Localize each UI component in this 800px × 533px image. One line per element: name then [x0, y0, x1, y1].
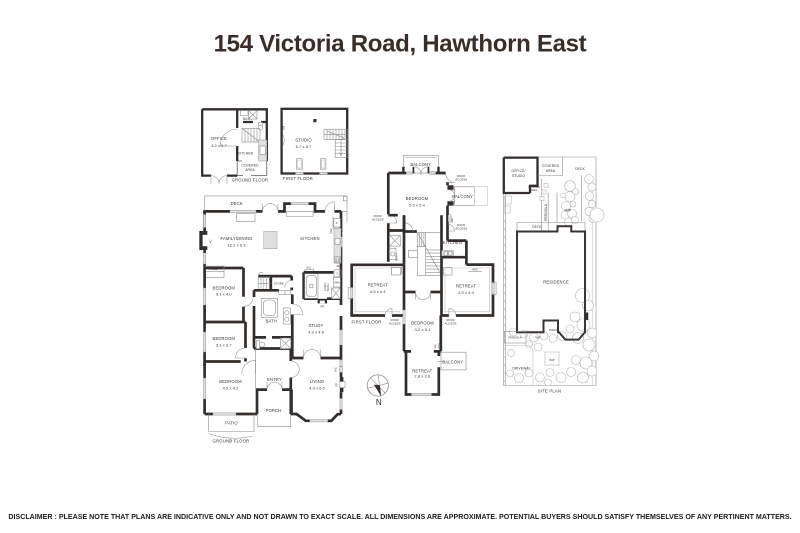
svg-text:5.5 x 5.4: 5.5 x 5.4 — [409, 203, 426, 208]
svg-text:LIVING: LIVING — [310, 379, 324, 384]
svg-text:FP: FP — [335, 383, 339, 387]
svg-text:BEDROOM: BEDROOM — [406, 196, 429, 201]
svg-text:PORCH: PORCH — [266, 408, 282, 413]
svg-text:DISCLAIMER : PLEASE NOTE THAT: DISCLAIMER : PLEASE NOTE THAT PLANS ARE … — [8, 513, 791, 521]
svg-text:KITCHEN: KITCHEN — [443, 240, 462, 245]
svg-text:OFFICE/: OFFICE/ — [512, 169, 526, 173]
svg-text:BEDROOM: BEDROOM — [213, 336, 236, 341]
svg-text:PERGOLA: PERGOLA — [544, 203, 548, 221]
svg-text:3.2 x 5.7: 3.2 x 5.7 — [211, 143, 227, 148]
svg-text:BALCONY: BALCONY — [442, 360, 463, 365]
svg-text:GROUND FLOOR: GROUND FLOOR — [213, 439, 250, 444]
svg-text:5.7 x 5.7: 5.7 x 5.7 — [296, 144, 312, 149]
svg-text:2.8 x 3.8: 2.8 x 3.8 — [414, 373, 430, 378]
svg-text:SITE PLAN: SITE PLAN — [538, 389, 561, 394]
svg-text:AREA: AREA — [245, 168, 255, 172]
svg-text:3.2 x 5.1: 3.2 x 5.1 — [415, 327, 431, 332]
svg-text:PORCH: PORCH — [549, 328, 558, 332]
svg-text:PERGOLA: PERGOLA — [509, 336, 522, 340]
svg-text:ACCESS: ACCESS — [455, 227, 467, 231]
svg-text:N: N — [376, 398, 382, 407]
svg-text:BATH: BATH — [326, 284, 330, 292]
svg-text:DN: DN — [282, 126, 286, 130]
svg-text:C: C — [336, 272, 338, 276]
svg-text:WIP: WIP — [565, 209, 572, 213]
svg-text:12.2 x 6.3: 12.2 x 6.3 — [227, 243, 245, 248]
svg-text:F: F — [336, 221, 338, 225]
svg-text:WIP: WIP — [535, 336, 540, 340]
svg-text:AREA: AREA — [531, 189, 538, 192]
svg-text:BEDROOM: BEDROOM — [411, 321, 434, 326]
svg-text:FIRST FLOOR: FIRST FLOOR — [283, 176, 313, 181]
svg-text:COVERED: COVERED — [241, 164, 259, 168]
svg-text:DECK: DECK — [532, 225, 542, 229]
svg-text:ACCESS: ACCESS — [389, 322, 401, 326]
svg-text:ROBE: ROBE — [209, 267, 217, 271]
svg-text:COVERED: COVERED — [542, 164, 560, 168]
svg-text:ACCESS: ACCESS — [455, 178, 467, 182]
svg-text:OFFICE: OFFICE — [211, 136, 227, 141]
svg-text:PATIO: PATIO — [225, 421, 238, 426]
svg-text:BATH: BATH — [395, 254, 399, 262]
svg-text:BEDROOM: BEDROOM — [219, 379, 242, 384]
svg-text:BATH: BATH — [266, 318, 277, 323]
svg-text:4.5 x 4.4: 4.5 x 4.4 — [458, 290, 475, 295]
svg-text:4.3 x 4.2: 4.3 x 4.2 — [223, 386, 239, 391]
svg-text:ACCESS: ACCESS — [372, 218, 384, 222]
svg-text:DW: DW — [329, 228, 333, 233]
svg-text:RESIDENCE: RESIDENCE — [543, 279, 569, 284]
svg-text:A/C: A/C — [450, 218, 454, 223]
svg-text:FIRST FLOOR: FIRST FLOOR — [352, 320, 382, 325]
svg-text:4.5 x 4.4: 4.5 x 4.4 — [370, 289, 387, 294]
svg-text:4.3 x 6.0: 4.3 x 6.0 — [309, 386, 326, 391]
svg-text:FAMILY/DINING: FAMILY/DINING — [221, 236, 253, 241]
svg-text:STUDIO: STUDIO — [512, 174, 526, 178]
svg-text:BEDROOM: BEDROOM — [213, 286, 236, 291]
svg-text:GROUND FLOOR: GROUND FLOOR — [232, 178, 269, 183]
svg-text:RETREAT: RETREAT — [368, 283, 388, 288]
svg-text:AC: AC — [209, 239, 213, 243]
svg-text:STUDIO: STUDIO — [295, 138, 312, 143]
svg-text:154 Victoria Road, Hawthorn Ea: 154 Victoria Road, Hawthorn East — [214, 31, 587, 58]
svg-text:3.1 x 4.0: 3.1 x 4.0 — [216, 292, 233, 297]
svg-text:W/C: W/C — [472, 267, 478, 271]
svg-text:A/C: A/C — [334, 367, 338, 372]
svg-text:A/C: A/C — [433, 344, 437, 349]
svg-text:WM: WM — [334, 281, 340, 285]
svg-text:DECK: DECK — [231, 201, 243, 206]
svg-text:3.1 x 3.7: 3.1 x 3.7 — [216, 343, 232, 348]
svg-text:KITCHEN: KITCHEN — [238, 152, 254, 156]
svg-text:KITCHEN: KITCHEN — [300, 236, 319, 241]
svg-text:STUDY: STUDY — [309, 323, 324, 328]
svg-text:WB: WB — [337, 264, 342, 268]
svg-text:AREA: AREA — [546, 169, 556, 173]
svg-text:FP: FP — [320, 305, 324, 309]
svg-text:BALCONY: BALCONY — [410, 162, 431, 167]
svg-text:A/C: A/C — [306, 265, 311, 269]
svg-text:DRIVEWAY: DRIVEWAY — [512, 367, 531, 371]
svg-text:ENTRY: ENTRY — [267, 377, 282, 382]
svg-text:WIP: WIP — [549, 358, 555, 362]
svg-text:RETREAT: RETREAT — [456, 284, 476, 289]
svg-text:BALCONY: BALCONY — [452, 194, 473, 199]
svg-text:4.3 x 4.6: 4.3 x 4.6 — [308, 330, 324, 335]
svg-text:DECK: DECK — [575, 167, 585, 171]
svg-text:ACCESS: ACCESS — [445, 322, 457, 326]
svg-text:STORE: STORE — [274, 282, 284, 286]
svg-text:C: C — [284, 291, 286, 295]
